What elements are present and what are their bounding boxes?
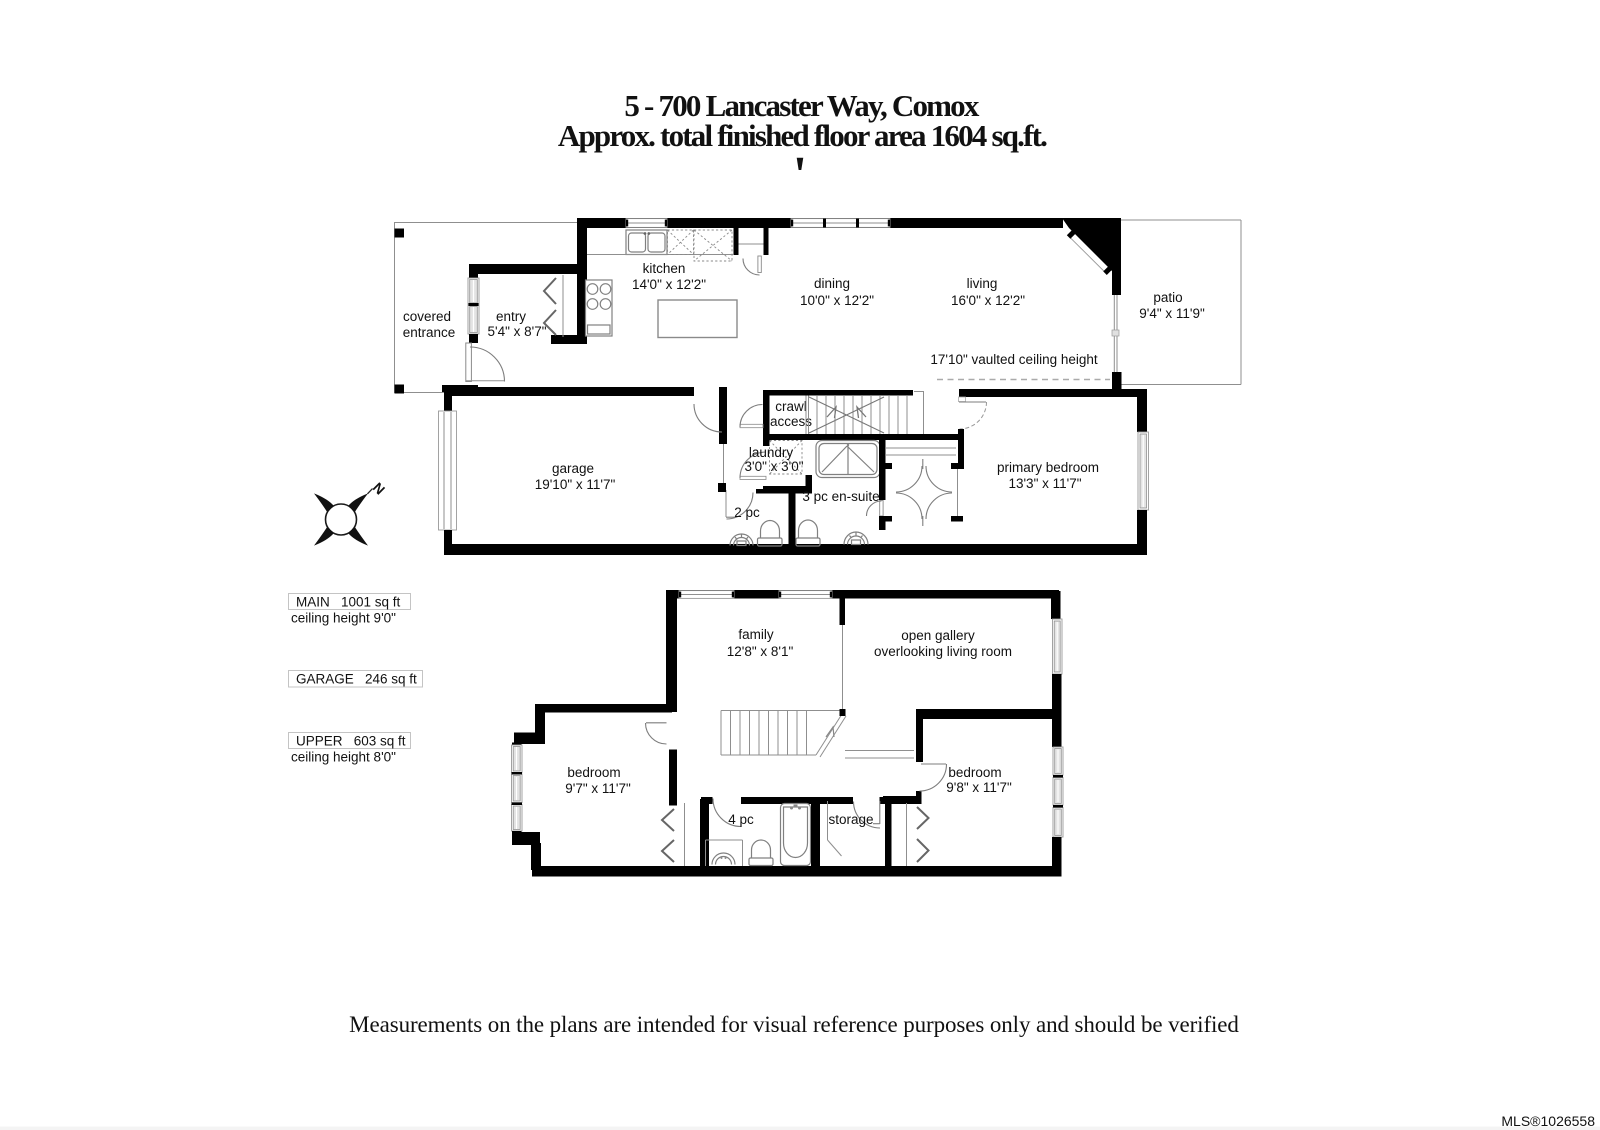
svg-text:open gallery: open gallery	[901, 628, 975, 643]
svg-text:laundry: laundry	[749, 445, 794, 460]
svg-text:ceiling height 9'0": ceiling height 9'0"	[291, 611, 396, 626]
svg-text:dining: dining	[814, 276, 850, 291]
svg-text:2 pc: 2 pc	[734, 505, 760, 520]
svg-text:17'10" vaulted ceiling height: 17'10" vaulted ceiling height	[930, 352, 1097, 367]
svg-text:': '	[793, 147, 807, 204]
svg-text:patio: patio	[1153, 290, 1182, 305]
svg-text:GARAGE 246 sq ft: GARAGE 246 sq ft	[296, 672, 417, 687]
svg-text:covered: covered	[403, 309, 451, 324]
svg-text:12'8" x 8'1": 12'8" x 8'1"	[727, 644, 794, 659]
svg-text:crawl: crawl	[775, 399, 807, 414]
svg-text:bedroom: bedroom	[948, 765, 1001, 780]
svg-text:10'0" x 12'2": 10'0" x 12'2"	[800, 293, 874, 308]
svg-text:entry: entry	[496, 309, 526, 324]
svg-text:3'0" x 3'0": 3'0" x 3'0"	[744, 459, 803, 474]
svg-text:UPPER 603 sq ft: UPPER 603 sq ft	[296, 734, 406, 749]
svg-text:ceiling height 8'0": ceiling height 8'0"	[291, 750, 396, 765]
svg-text:19'10" x 11'7": 19'10" x 11'7"	[535, 477, 616, 492]
svg-text:Measurements on the plans are: Measurements on the plans are intended f…	[349, 1012, 1239, 1037]
svg-text:entrance: entrance	[403, 325, 456, 340]
svg-text:14'0" x 12'2": 14'0" x 12'2"	[632, 277, 706, 292]
svg-text:storage: storage	[828, 812, 873, 827]
svg-text:3 pc en-suite: 3 pc en-suite	[802, 489, 879, 504]
svg-text:16'0" x 12'2": 16'0" x 12'2"	[951, 293, 1025, 308]
svg-text:MAIN 1001 sq ft: MAIN 1001 sq ft	[296, 595, 401, 610]
svg-text:bedroom: bedroom	[567, 765, 620, 780]
svg-text:family: family	[738, 627, 774, 642]
svg-text:9'8" x 11'7": 9'8" x 11'7"	[946, 780, 1012, 795]
svg-text:living: living	[967, 276, 998, 291]
svg-text:4 pc: 4 pc	[728, 812, 754, 827]
svg-text:kitchen: kitchen	[643, 261, 686, 276]
svg-text:9'7" x 11'7": 9'7" x 11'7"	[565, 781, 631, 796]
svg-text:13'3" x 11'7": 13'3" x 11'7"	[1008, 476, 1081, 491]
svg-text:5'4" x 8'7": 5'4" x 8'7"	[487, 324, 546, 339]
svg-text:9'4" x 11'9": 9'4" x 11'9"	[1139, 306, 1205, 321]
svg-text:garage: garage	[552, 461, 594, 476]
svg-text:primary bedroom: primary bedroom	[997, 460, 1099, 475]
svg-text:overlooking living room: overlooking living room	[874, 644, 1012, 659]
